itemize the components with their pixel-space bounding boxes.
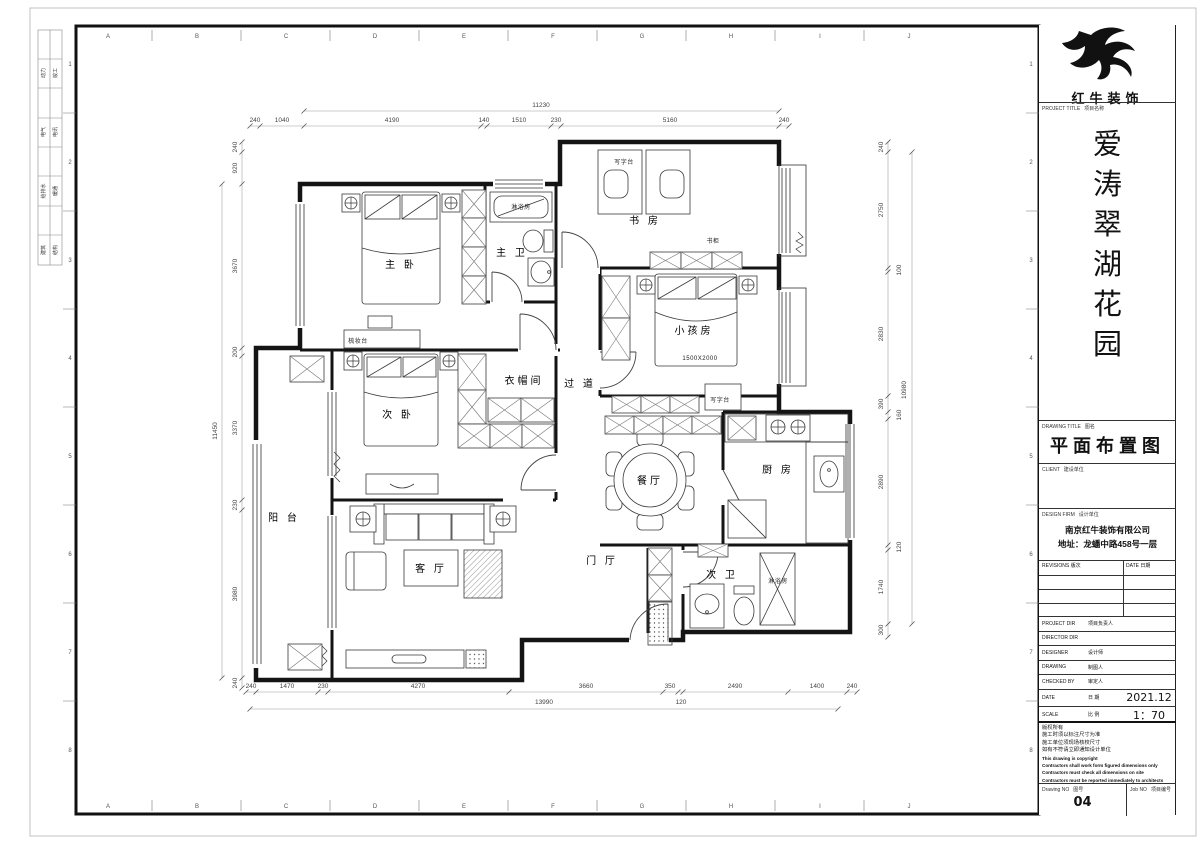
small-label-1: 写字台 <box>614 158 634 166</box>
grid-number-right-7: 7 <box>1029 650 1033 656</box>
dimension-13: 200 <box>232 346 239 357</box>
copyright-line-5: Contractors shall work form figured dime… <box>1042 762 1173 769</box>
copyright-notes: 版权所有施工时须以标注尺寸为准施工单位须现场核校尺寸如有不符请立即通知设计单位T… <box>1039 723 1176 786</box>
dimension-6: 230 <box>551 117 562 124</box>
copyright-line-3: 如有不符请立即通知设计单位 <box>1042 747 1173 754</box>
dimension-24: 2890 <box>878 474 885 489</box>
personnel-rows: PROJECT DIR项目负责人DIRECTOR DIRDESIGNER设计师D… <box>1039 616 1176 723</box>
grid-number-right-5: 5 <box>1029 454 1033 460</box>
grid-letter-top-G: G <box>640 34 645 40</box>
grid-letter-bottom-B: B <box>195 804 199 810</box>
discipline-竣工: 竣工 <box>52 68 59 78</box>
grid-letter-top-E: E <box>462 34 466 40</box>
room-label-2: 书 房 <box>629 214 661 227</box>
grid-letter-top-J: J <box>908 34 911 40</box>
grid-number-left-5: 5 <box>68 454 72 460</box>
grid-letter-bottom-G: G <box>640 804 645 810</box>
dimension-39: 120 <box>676 699 687 706</box>
dimension-2: 1040 <box>275 117 290 124</box>
dimension-15: 230 <box>232 499 239 510</box>
room-label-7: 餐厅 <box>637 474 663 487</box>
grid-number-right-6: 6 <box>1029 552 1033 558</box>
dimension-18: 240 <box>878 141 885 152</box>
dimension-10: 240 <box>232 141 239 152</box>
dimension-36: 1400 <box>810 683 825 690</box>
project-name: 爱涛翠湖花园 <box>1039 125 1176 415</box>
dimension-16: 3980 <box>232 586 239 601</box>
drawing-title: 平面布置图 <box>1039 432 1176 458</box>
floor-plan-canvas: 主 卧主 卫书 房小孩房衣帽间过 道次 卧餐厅厨 房阳 台客 厅门 厅次 卫淋浴… <box>0 0 1200 844</box>
small-label-0: 淋浴房 <box>511 203 531 211</box>
project-name-char-1: 涛 <box>1093 165 1122 205</box>
discipline-电气: 电气 <box>40 127 47 137</box>
project-name-char-5: 园 <box>1093 325 1122 365</box>
dimension-14: 3370 <box>232 420 239 435</box>
dimension-4: 140 <box>479 117 490 124</box>
grid-number-left-3: 3 <box>68 258 72 264</box>
tb-row-drawing: DRAWING制图人 <box>1039 660 1176 675</box>
dimension-31: 230 <box>318 683 329 690</box>
dimension-33: 3660 <box>579 683 594 690</box>
room-label-6: 次 卧 <box>382 408 414 421</box>
dimension-27: 300 <box>878 624 885 635</box>
grid-number-left-4: 4 <box>68 356 72 362</box>
grid-number-left-8: 8 <box>68 748 72 754</box>
copyright-line-1: 施工时须以标注尺寸为准 <box>1042 732 1173 739</box>
dimension-1: 240 <box>250 117 261 124</box>
tb-row-project-dir: PROJECT DIR项目负责人 <box>1039 616 1176 631</box>
room-label-12: 次 卫 <box>706 568 738 581</box>
project-name-char-4: 花 <box>1093 285 1122 325</box>
small-label-4: 写字台 <box>710 396 730 404</box>
dimension-32: 4270 <box>411 683 426 690</box>
dimension-9: 11450 <box>212 422 219 440</box>
room-label-4: 衣帽间 <box>505 374 544 387</box>
discipline-暖通: 暖通 <box>52 186 59 196</box>
dimension-29: 240 <box>246 683 257 690</box>
dimension-0: 11230 <box>532 102 550 109</box>
grid-number-left-7: 7 <box>68 650 72 656</box>
grid-letter-bottom-H: H <box>729 804 733 810</box>
dimension-12: 3670 <box>232 258 239 273</box>
dimension-8: 240 <box>779 117 790 124</box>
dimension-30: 1470 <box>280 683 295 690</box>
grid-number-right-3: 3 <box>1029 258 1033 264</box>
dimension-26: 1740 <box>878 579 885 594</box>
dimension-3: 4190 <box>385 117 400 124</box>
grid-number-right-4: 4 <box>1029 356 1033 362</box>
small-label-6: 淋浴房 <box>768 577 788 585</box>
dimension-21: 2830 <box>878 326 885 341</box>
grid-letter-bottom-D: D <box>373 804 378 810</box>
room-label-5: 过 道 <box>564 377 596 390</box>
tb-row-date: DATE日 期2021.12 <box>1039 689 1176 706</box>
revisions-table: REVISIONS 版次 DATE 日期 <box>1039 560 1176 616</box>
grid-letter-top-C: C <box>284 34 289 40</box>
client-label: CLIENT建设单位 <box>1039 464 1176 473</box>
discipline-结构: 结构 <box>52 245 59 255</box>
grid-letter-bottom-F: F <box>551 804 555 810</box>
drawing-sheet: 主 卧主 卫书 房小孩房衣帽间过 道次 卧餐厅厨 房阳 台客 厅门 厅次 卫淋浴… <box>0 0 1200 844</box>
dimension-37: 240 <box>847 683 858 690</box>
dimension-34: 350 <box>665 683 676 690</box>
tb-row-designer: DESIGNER设计师 <box>1039 645 1176 660</box>
grid-letter-bottom-A: A <box>106 804 110 810</box>
room-label-1: 主 卫 <box>496 247 528 259</box>
grid-number-right-1: 1 <box>1029 62 1033 68</box>
discipline-strip <box>38 30 62 265</box>
room-label-0: 主 卧 <box>385 258 417 271</box>
project-name-char-0: 爱 <box>1093 125 1122 165</box>
room-label-10: 客 厅 <box>415 562 447 575</box>
dimension-35: 2490 <box>728 683 743 690</box>
dimension-7: 5160 <box>663 117 678 124</box>
company-logo: 红牛装饰 <box>1039 25 1176 102</box>
grid-letter-top-B: B <box>195 34 199 40</box>
room-label-8: 厨 房 <box>762 463 794 476</box>
title-block: 红牛装饰 PROJECT TITLE项目名称 爱涛翠湖花园 DRAWING TI… <box>1039 25 1176 815</box>
grid-letter-top-F: F <box>551 34 555 40</box>
tb-row-checked-by: CHECKED BY审定人 <box>1039 674 1176 689</box>
dimension-25: 120 <box>896 541 903 552</box>
grid-letter-bottom-E: E <box>462 804 466 810</box>
dimension-20: 100 <box>896 264 903 275</box>
design-firm-label: DESIGN FIRM设计单位 <box>1039 509 1176 518</box>
tb-row-director-dir: DIRECTOR DIR <box>1039 631 1176 646</box>
grid-number-left-6: 6 <box>68 552 72 558</box>
discipline-给排水: 给排水 <box>40 183 47 198</box>
bull-logo-icon <box>1039 25 1176 81</box>
grid-letter-top-H: H <box>729 34 733 40</box>
dimension-28: 10980 <box>901 381 908 399</box>
furniture <box>342 150 848 668</box>
small-label-3: 1500X2000 <box>682 356 717 362</box>
dimension-22: 390 <box>878 398 885 409</box>
grid-number-left-2: 2 <box>68 160 72 166</box>
dimension-11: 920 <box>232 162 239 173</box>
plan-annotations: 主 卧主 卫书 房小孩房衣帽间过 道次 卧餐厅厨 房阳 台客 厅门 厅次 卫淋浴… <box>40 34 1033 810</box>
dimension-19: 2750 <box>878 202 885 217</box>
small-label-2: 书柜 <box>706 237 719 245</box>
room-label-9: 阳 台 <box>268 511 300 524</box>
dimension-23: 160 <box>896 409 903 420</box>
grid-letter-bottom-C: C <box>284 804 289 810</box>
copyright-line-6: Contractors must check all dimensions on… <box>1042 769 1173 776</box>
dimension-5: 1510 <box>512 117 527 124</box>
grid-number-right-8: 8 <box>1029 748 1033 754</box>
project-name-char-3: 湖 <box>1093 245 1122 285</box>
discipline-建筑: 建筑 <box>40 245 47 255</box>
design-firm: 南京红牛装饰有限公司 地址：龙蟠中路458号一层 <box>1039 521 1176 550</box>
copyright-line-4: This drawing is copyright <box>1042 755 1173 762</box>
dimension-17: 240 <box>232 677 239 688</box>
design-firm-address: 地址：龙蟠中路458号一层 <box>1039 538 1176 550</box>
project-title-label: PROJECT TITLE项目名称 <box>1039 103 1176 112</box>
drawing-number: 04 <box>1039 795 1126 810</box>
discipline-电讯: 电讯 <box>52 127 59 137</box>
grid-letter-bottom-I: I <box>819 804 821 810</box>
small-label-5: 梳妆台 <box>348 337 368 345</box>
grid-letter-top-D: D <box>373 34 378 40</box>
grid-letter-bottom-J: J <box>908 804 911 810</box>
grid-letter-top-I: I <box>819 34 821 40</box>
grid-number-right-2: 2 <box>1029 160 1033 166</box>
design-firm-name: 南京红牛装饰有限公司 <box>1039 524 1176 536</box>
room-label-11: 门 厅 <box>586 554 618 567</box>
project-name-char-2: 翠 <box>1093 205 1122 245</box>
drawing-number-row: Drawing NO图号 04 Job NO项目编号 <box>1039 783 1176 815</box>
tb-row-scale: SCALE比 例1：70 <box>1039 706 1176 723</box>
room-label-3: 小孩房 <box>675 324 714 337</box>
discipline-动力: 动力 <box>40 68 47 78</box>
dimension-38: 13990 <box>535 699 553 706</box>
drawing-title-label: DRAWING TITLE图名 <box>1039 421 1176 430</box>
grid-number-left-1: 1 <box>68 62 72 68</box>
grid-letter-top-A: A <box>106 34 110 40</box>
